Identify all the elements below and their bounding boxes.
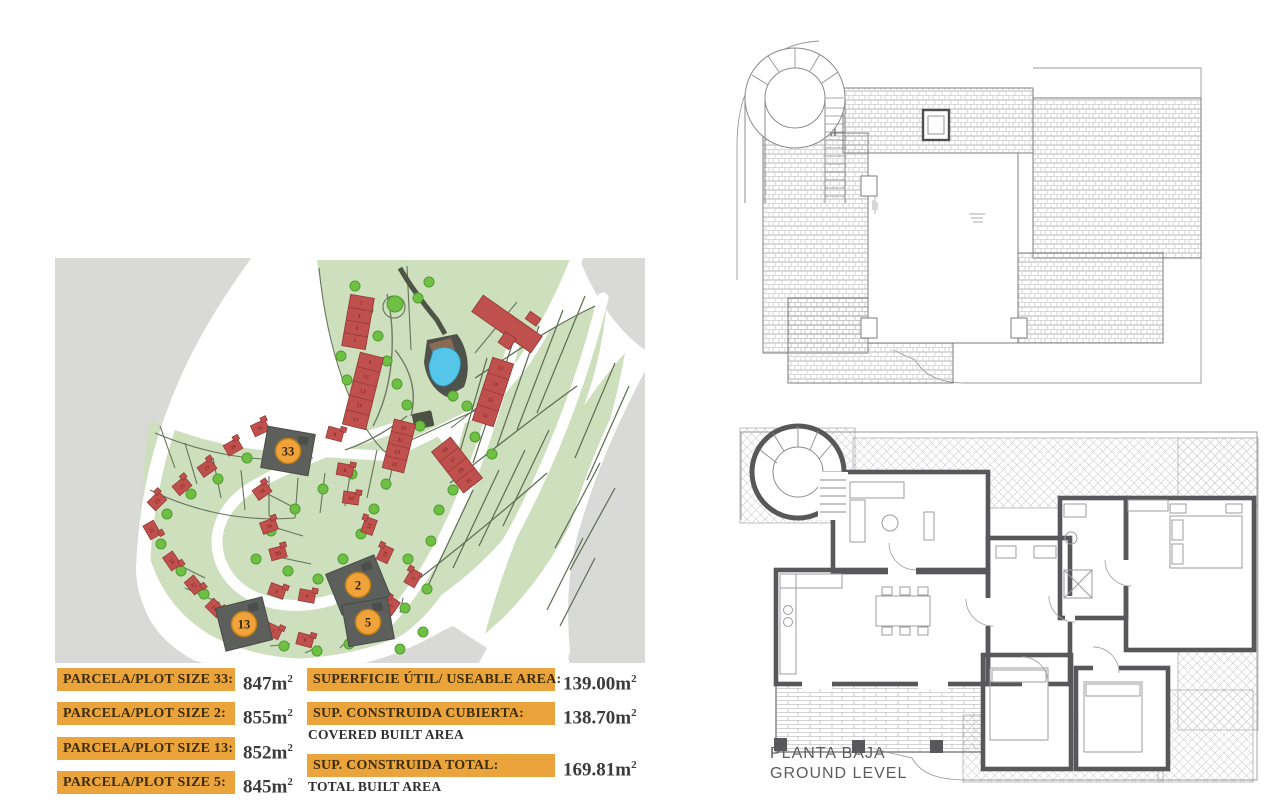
area-value: 169.81m2 (563, 754, 637, 781)
area-value: 138.70m2 (563, 702, 637, 729)
plot-marker-number: 2 (355, 579, 361, 593)
tree-icon (434, 505, 444, 515)
plot-size-row: PARCELA/PLOT SIZE 2: 855m2 (57, 702, 293, 729)
tree-icon (395, 644, 405, 654)
value-sup: 2 (631, 707, 637, 719)
area-label: SUP. CONSTRUIDA TOTAL: (307, 754, 555, 777)
tree-icon (426, 536, 436, 546)
area-row: SUPERFICIE ÚTIL/ USEABLE AREA: 139.00m2 (307, 668, 637, 695)
tree-icon (373, 331, 383, 341)
roof-void (861, 153, 1027, 343)
plot-size-row: PARCELA/PLOT SIZE 13: 852m2 (57, 737, 293, 764)
house-footprint-wing (340, 426, 347, 432)
brochure-page: { "site_plan": { "highlighted_plots": [ … (0, 0, 1280, 800)
tree-icon (336, 351, 346, 361)
tree-icon (162, 509, 172, 519)
tree-icon (424, 277, 434, 287)
value-sup: 2 (287, 776, 293, 788)
tree-icon (387, 296, 403, 312)
entry-stair (752, 426, 848, 520)
area-row: SUP. CONSTRUIDA CUBIERTA: COVERED BUILT … (307, 702, 637, 747)
plot-size-row: PARCELA/PLOT SIZE 5: 845m2 (57, 771, 293, 798)
plot-size-value: 845m2 (243, 771, 293, 798)
highlighted-plot: 33 (261, 426, 316, 476)
tree-icon (156, 539, 166, 549)
tree-icon (318, 484, 328, 494)
tree-icon (283, 566, 293, 576)
tree-icon (415, 421, 425, 431)
tree-icon (403, 554, 413, 564)
tree-icon (448, 485, 458, 495)
plot-marker-number: 33 (282, 445, 295, 459)
area-label: SUP. CONSTRUIDA CUBIERTA: (307, 702, 555, 725)
plot-size-value: 847m2 (243, 668, 293, 695)
plot-marker-number: 13 (238, 618, 251, 632)
tree-icon (448, 391, 458, 401)
value-text: 169.81m (563, 760, 631, 781)
roof-plan (723, 28, 1207, 400)
area-sublabel: TOTAL BUILT AREA (308, 779, 555, 795)
tree-icon (369, 504, 379, 514)
plot-size-label: PARCELA/PLOT SIZE 2: (57, 702, 235, 725)
plan-title-en: GROUND LEVEL (770, 765, 907, 782)
tree-icon (400, 603, 410, 613)
plot-size-value: 852m2 (243, 737, 293, 764)
site-plan: 1357911131517192123251715131109070501312… (55, 258, 645, 663)
value-text: 845m (243, 776, 287, 797)
value-text: 138.70m (563, 708, 631, 729)
house-footprint-wing (280, 542, 287, 548)
value-sup: 2 (287, 742, 293, 754)
tree-icon (402, 400, 412, 410)
plot-size-value: 855m2 (243, 702, 293, 729)
plot-marker-number: 5 (365, 616, 371, 630)
tree-icon (381, 479, 391, 489)
tree-icon (242, 453, 252, 463)
tree-icon (462, 401, 472, 411)
plot-size-label: PARCELA/PLOT SIZE 5: (57, 771, 235, 794)
tree-icon (350, 281, 360, 291)
house-footprint-wing (350, 462, 357, 468)
tree-icon (186, 489, 196, 499)
tree-icon (213, 474, 223, 484)
area-sublabel: COVERED BUILT AREA (308, 727, 555, 743)
tree-icon (382, 356, 392, 366)
plot-size-table: PARCELA/PLOT SIZE 33: 847m2 PARCELA/PLOT… (57, 668, 293, 805)
house-footprint-wing (312, 588, 319, 594)
built-area-table: SUPERFICIE ÚTIL/ USEABLE AREA: 139.00m2 … (307, 668, 637, 806)
plot-size-row: PARCELA/PLOT SIZE 33: 847m2 (57, 668, 293, 695)
highlighted-plot: 5 (342, 597, 395, 646)
plot-number: 10 (348, 495, 355, 502)
value-sup: 2 (287, 673, 293, 685)
tree-icon (176, 566, 186, 576)
tree-icon (470, 432, 480, 442)
porch (774, 684, 983, 753)
house-footprint-wing (310, 632, 317, 638)
tree-icon (338, 554, 348, 564)
value-text: 139.00m (563, 673, 631, 694)
tree-icon (487, 449, 497, 459)
value-text: 847m (243, 673, 287, 694)
value-sup: 2 (631, 673, 637, 685)
tree-icon (251, 554, 261, 564)
tree-icon (422, 584, 432, 594)
tree-icon (313, 574, 323, 584)
value-sup: 2 (631, 759, 637, 771)
plot-size-label: PARCELA/PLOT SIZE 13: (57, 737, 235, 760)
tree-icon (312, 646, 322, 656)
plot-size-label: PARCELA/PLOT SIZE 33: (57, 668, 235, 691)
tree-icon (290, 504, 300, 514)
area-label: SUPERFICIE ÚTIL/ USEABLE AREA: (307, 668, 555, 691)
tree-icon (199, 589, 209, 599)
tree-icon (279, 641, 289, 651)
value-text: 852m (243, 742, 287, 763)
tree-icon (342, 375, 352, 385)
tree-icon (413, 293, 423, 303)
ground-floor-plan: PLANTA BAJA GROUND LEVEL (738, 420, 1262, 798)
house-footprint-wing (356, 490, 363, 496)
plan-title-es: PLANTA BAJA (770, 745, 886, 762)
tree-icon (392, 379, 402, 389)
value-text: 855m (243, 708, 287, 729)
roof-skylight (923, 110, 949, 140)
area-row: SUP. CONSTRUIDA TOTAL: TOTAL BUILT AREA … (307, 754, 637, 799)
tree-icon (418, 627, 428, 637)
value-sup: 2 (287, 707, 293, 719)
area-value: 139.00m2 (563, 668, 637, 695)
